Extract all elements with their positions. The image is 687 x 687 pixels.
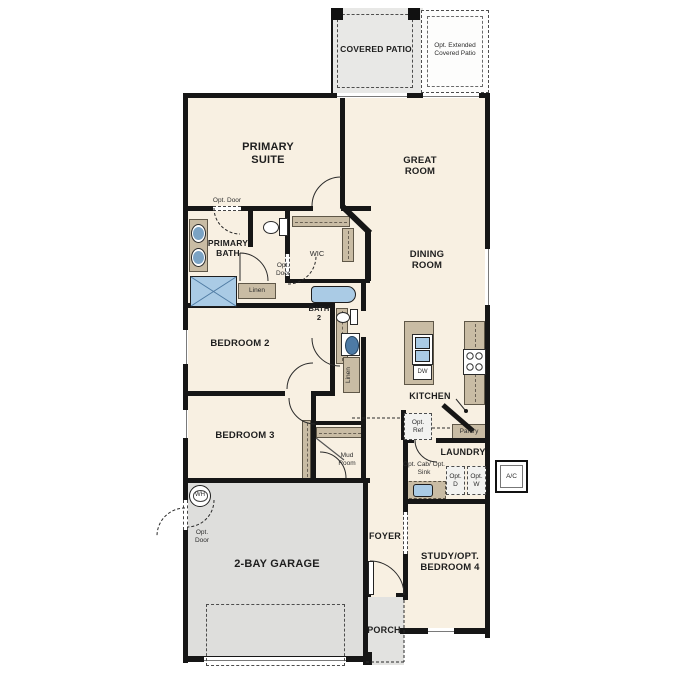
opt-door-suite-label: Opt. Door [207,197,247,205]
wall-suite-bottom-a [183,206,213,211]
window-bedroom2-left [183,330,188,364]
dining-room-label: DINING ROOM [397,249,457,271]
wic-shelf-top [292,216,350,227]
patio-post-left [331,8,343,20]
porch-label: PORCH [362,625,406,636]
window-patio-top [423,93,479,98]
kitchen-label: KITCHEN [404,391,456,402]
great-room-label: GREAT ROOM [390,155,450,177]
linen-bath2-label: Linen [345,360,358,390]
opt-door-gap-suite [213,206,241,211]
bedroom2-label: BEDROOM 2 [190,338,290,349]
door-arc-garage-opt-exterior [157,508,185,536]
bath2-toilet-bowl [336,312,350,323]
wall-bath2-right-a [361,279,366,311]
mudroom-shelf [316,427,364,438]
primary-bath-label: PRIMARY BATH [198,238,258,258]
opt-extended-patio-label: Opt. Extended Covered Patio [424,42,486,58]
patio-post-right [408,8,420,20]
water-heater-label: WH [193,490,208,501]
wall-wic-bottom [285,279,370,283]
primary-toilet-tank [279,218,288,236]
wall-bath2-right-b [361,337,366,483]
bedroom3-label: BEDROOM 3 [195,430,295,441]
opt-washer-label: Opt. W [469,473,484,489]
primary-suite-label: PRIMARY SUITE [228,141,308,167]
opt-washer-box: Opt. W [467,466,486,495]
wall-suite-great [340,98,345,208]
wall-left [183,93,188,663]
bathtub [311,286,356,303]
wic-label: WIC [299,249,335,258]
bath2-toilet-tank [350,309,358,325]
wall-suite-bottom-c [341,206,371,211]
opt-dryer-box: Opt. D [446,466,465,495]
opt-door-garage-label: Opt. Door [190,529,214,545]
study-label: STUDY/OPT. BEDROOM 4 [409,551,491,573]
water-heater-circle: WH [189,485,211,507]
wic-shelf-right [342,228,354,262]
ac-unit: A/C [495,460,528,493]
pantry-label: Pantry [452,428,486,436]
laundry-label: LAUNDRY [436,447,490,458]
opt-dryer-label: Opt. D [448,473,463,489]
covered-patio-label: COVERED PATIO [336,44,416,54]
front-door-leaf [368,561,374,595]
dishwasher-label: DW [418,369,428,376]
foyer-label: FOYER [363,531,407,542]
opt-cab-sink-label: Opt. Cab/ Opt. Sink [401,461,447,477]
dishwasher-box: DW [413,365,432,380]
bath2-sink-basin [345,336,359,355]
linen-primary-label: Linen [238,287,276,295]
window-great-room-top [337,93,407,98]
garage-label: 2-BAY GARAGE [229,558,325,571]
opt-ref-label: Opt. Ref [409,419,427,435]
floor-plan: COVERED PATIO Opt. Extended Covered Pati… [0,0,687,687]
range [463,349,486,375]
wall-bed2-bed3-a [183,391,285,396]
island-sink-basin-1 [415,337,430,349]
shower [190,276,237,307]
wall-study-top [403,499,488,504]
opt-ref-box: Opt. Ref [404,413,432,440]
window-bedroom3-left [183,410,188,438]
bedroom3-closet-shelf [302,420,311,480]
laundry-opt-sink [413,484,433,497]
window-dining-right [485,249,490,305]
wall-garage-top [183,478,370,483]
bath2-label: BATH 2 [306,305,332,323]
opt-door-wic-label: Opt. Door [272,262,294,278]
ac-inner-frame [500,465,523,488]
opt-door-gap-garage [183,500,188,530]
wall-great-left [365,230,371,281]
primary-toilet-bowl [263,221,279,234]
garage-door-dashed [206,604,345,666]
wall-foyer-porch-b [396,593,407,597]
window-study-bottom [428,628,454,634]
porch-corner-block [363,652,372,665]
wall-bed3-right [311,396,316,483]
wall-mud-top [311,421,366,425]
mudroom-label: Mud Room [333,452,361,468]
wall-laundry-top-b [436,438,488,443]
island-sink-basin-2 [415,350,430,362]
